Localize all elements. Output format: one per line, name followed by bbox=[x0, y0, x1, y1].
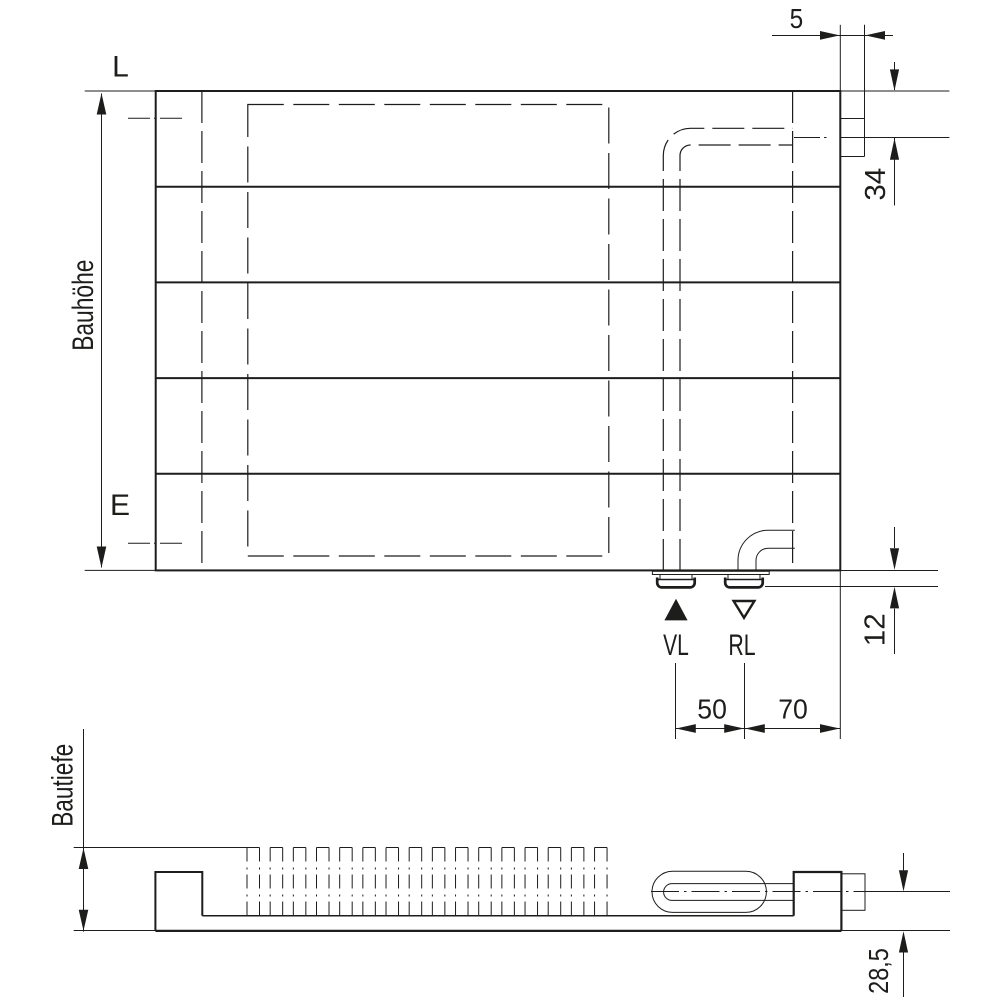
svg-text:Bautiefe: Bautiefe bbox=[45, 744, 79, 827]
svg-text:28,5: 28,5 bbox=[864, 948, 894, 994]
svg-text:50: 50 bbox=[697, 693, 727, 725]
svg-text:VL: VL bbox=[663, 630, 689, 662]
svg-text:12: 12 bbox=[859, 613, 892, 646]
svg-text:E: E bbox=[110, 489, 130, 522]
svg-text:70: 70 bbox=[778, 693, 808, 725]
svg-text:RL: RL bbox=[728, 627, 755, 662]
svg-text:34: 34 bbox=[859, 168, 892, 201]
svg-text:L: L bbox=[112, 50, 129, 83]
svg-text:5: 5 bbox=[790, 2, 804, 34]
svg-text:Bauhöhe: Bauhöhe bbox=[66, 260, 100, 351]
